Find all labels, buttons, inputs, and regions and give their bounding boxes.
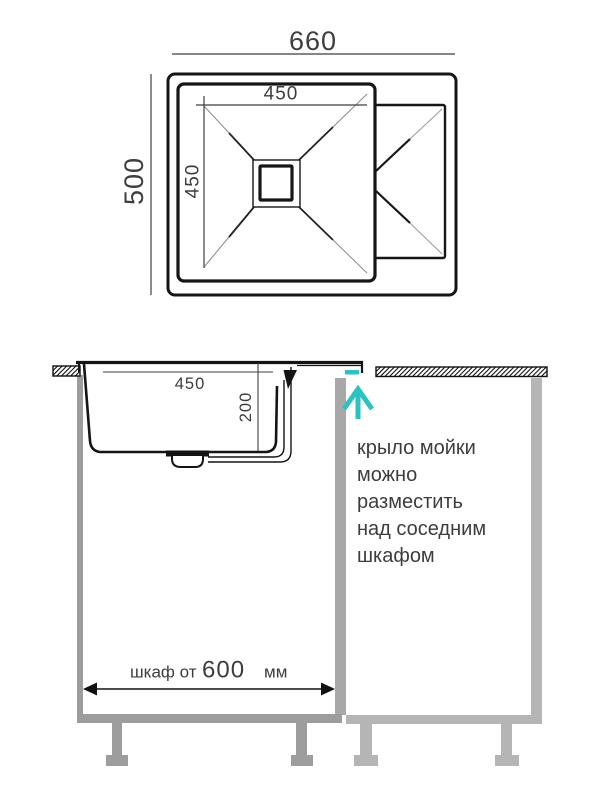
leg-stem [112,723,122,756]
cabinet-leg [106,723,128,766]
note-line: можно [357,464,417,486]
hatch-line [546,375,547,376]
cabinet-leg [291,723,313,766]
clearance-dash-icon [345,370,359,375]
sink-drawing-canvas: 660 500 450 450 [0,0,600,800]
note-line: над соседним [357,518,486,540]
drainer-wing-top [373,105,445,258]
dim-arrowhead-left [83,683,97,696]
dim-label-bowl-depth-top: 450 [183,164,204,199]
left-cabinet-bottom [77,714,342,723]
wing-note: крыло мойки можно разместить над соседни… [357,437,486,567]
leg-stem [360,724,372,756]
leg-stem [501,724,512,756]
wing-drip-edge [284,370,298,389]
drain-trap [172,456,203,467]
top-view: 660 500 450 450 [119,26,456,295]
leg-foot [354,755,378,766]
cabinet-width-dimension: шкаф от 600 мм [83,657,335,696]
dim-label-bowl-depth-section: 200 [237,392,255,423]
technical-drawing-page: 660 500 450 450 [0,0,600,800]
dim-label-overall-width: 660 [289,26,337,56]
dim-arrowhead-right [321,683,335,696]
dim-label-overall-depth: 500 [119,157,149,205]
cabinet-leg [354,724,378,766]
leg-foot [495,755,519,766]
cabinet-middle-wall [335,378,346,715]
leg-foot [106,755,128,766]
right-cabinet-right-wall [531,378,542,715]
note-line: разместить [357,491,463,513]
sink-section [76,361,363,467]
dim-label-bowl-width-top: 450 [264,84,299,105]
cabinet-dim-prefix: шкаф от [130,663,197,682]
note-line: шкафом [357,545,435,567]
drain-hole [260,166,292,200]
right-cabinet-bottom [346,715,542,724]
cabinet-leg [495,724,519,766]
dim-label-bowl-width-section: 450 [175,375,206,393]
up-arrow-icon [344,389,372,419]
cabinet-dim-value: 600 [202,657,245,684]
section-view: 450 200 крыло мойки можно разместить над… [53,361,547,766]
note-line: крыло мойки [357,437,476,459]
cabinet-dim-unit: мм [264,663,287,682]
leg-foot [291,755,313,766]
leg-stem [296,723,307,756]
left-cabinet-left-wall [77,375,83,715]
